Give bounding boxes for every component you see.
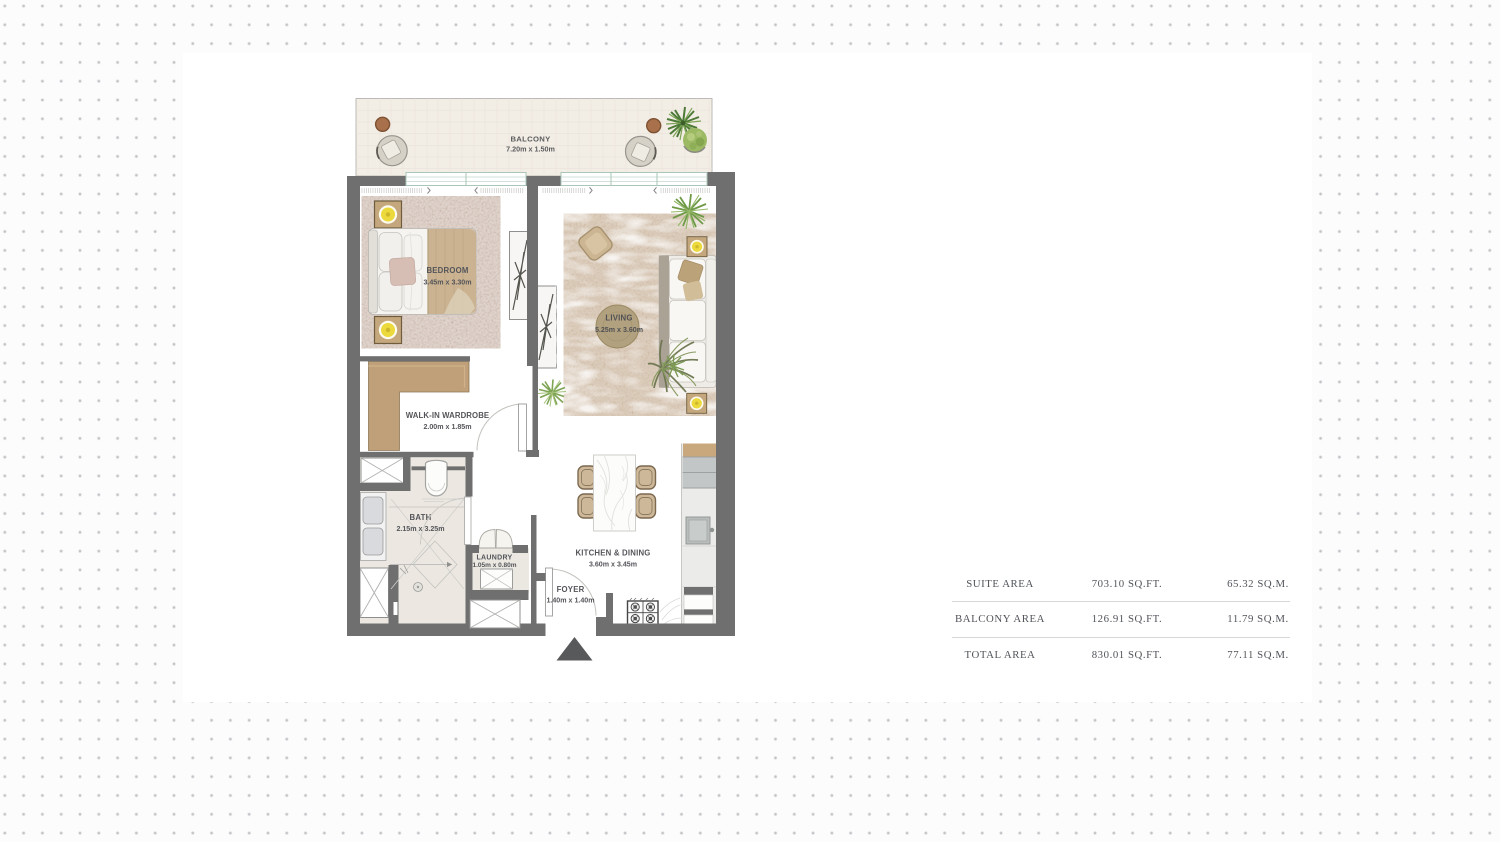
svg-text:BEDROOM: BEDROOM: [426, 266, 468, 275]
svg-text:3.45m x 3.30m: 3.45m x 3.30m: [423, 279, 471, 287]
svg-text:2.00m x 1.85m: 2.00m x 1.85m: [423, 423, 471, 431]
svg-text:LIVING: LIVING: [605, 314, 632, 323]
svg-text:KITCHEN & DINING: KITCHEN & DINING: [575, 549, 650, 558]
svg-text:WALK-IN WARDROBE: WALK-IN WARDROBE: [406, 411, 489, 420]
svg-text:FOYER: FOYER: [557, 585, 585, 594]
svg-text:LAUNDRY: LAUNDRY: [476, 555, 512, 562]
svg-text:1.05m x 0.80m: 1.05m x 0.80m: [472, 562, 516, 569]
svg-text:7.20m x 1.50m: 7.20m x 1.50m: [506, 145, 555, 154]
svg-text:5.25m x 3.60m: 5.25m x 3.60m: [595, 326, 643, 334]
svg-text:BATH: BATH: [410, 513, 432, 522]
svg-text:1.40m x 1.40m: 1.40m x 1.40m: [546, 597, 594, 605]
svg-text:3.60m x 3.45m: 3.60m x 3.45m: [589, 561, 637, 569]
svg-text:BALCONY: BALCONY: [510, 135, 550, 144]
svg-text:2.15m x 3.25m: 2.15m x 3.25m: [396, 525, 444, 533]
